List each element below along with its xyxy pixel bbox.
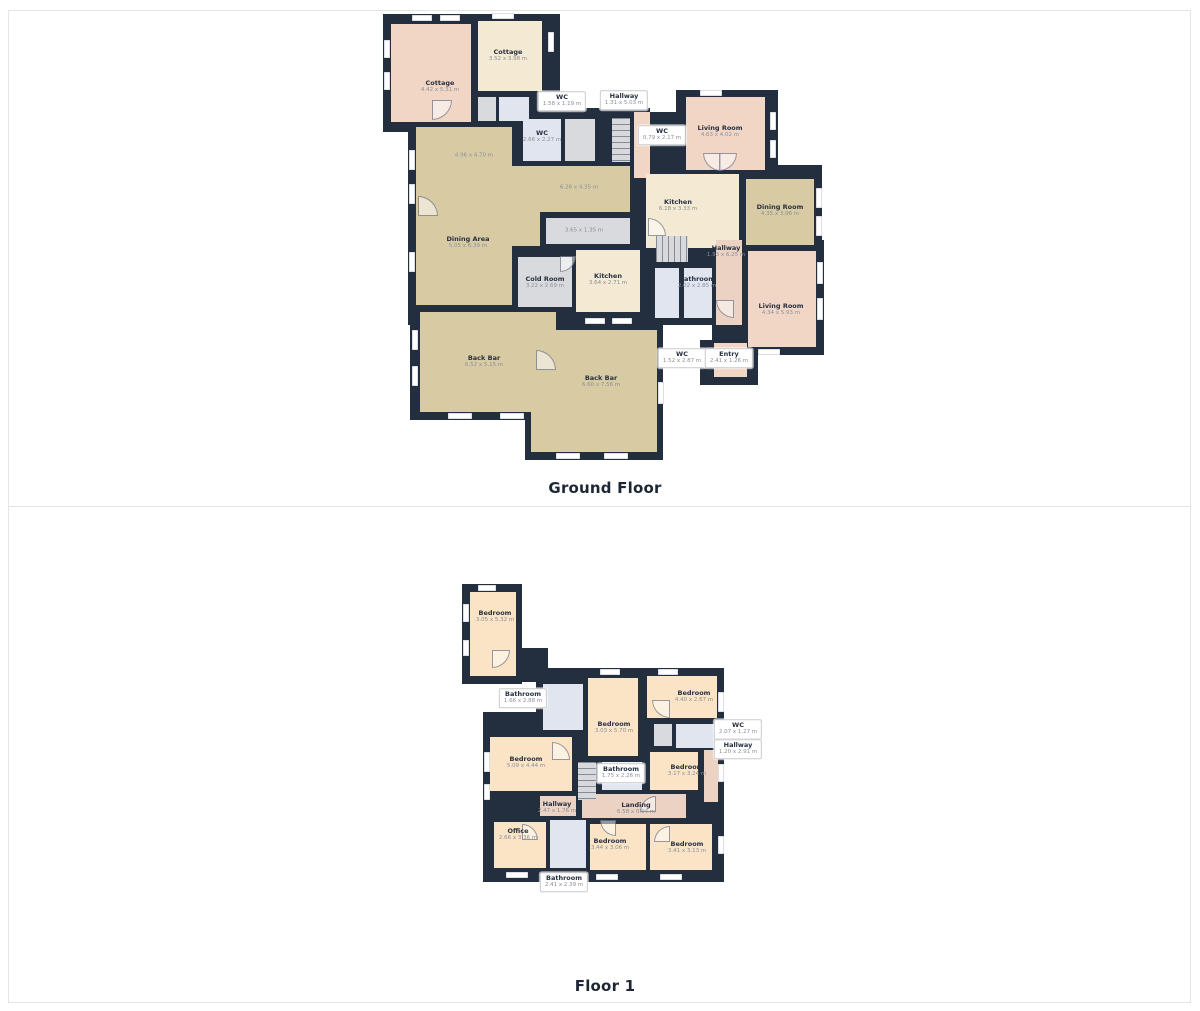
room-name: Back Bar bbox=[582, 374, 620, 382]
room-label-living-top: Living Room4.63 x 4.02 m bbox=[697, 124, 742, 140]
room-dimensions: 2.47 x 1.76 m bbox=[538, 809, 576, 816]
room-name: Office bbox=[499, 827, 537, 835]
room-dimensions: 1.66 x 2.88 m bbox=[504, 699, 542, 706]
room-dimensions: 4.34 x 5.93 m bbox=[758, 311, 803, 318]
room-label-wc-mid: WC2.66 x 2.27 m bbox=[523, 129, 561, 145]
room-dimensions: 0.79 x 2.17 m bbox=[643, 136, 681, 143]
room-name: Bathroom bbox=[545, 874, 583, 882]
room-dimensions: 1.93 x 6.25 m bbox=[707, 253, 745, 260]
room-label-back-bar-right: Back Bar6.60 x 7.56 m bbox=[582, 374, 620, 390]
window bbox=[556, 453, 580, 459]
room-label-back-bar-left: Back Bar6.52 x 5.15 m bbox=[465, 354, 503, 370]
room-cottage-left bbox=[391, 24, 471, 122]
room-dimensions: 3.03 x 5.70 m bbox=[595, 729, 633, 736]
room-name: Hallway bbox=[538, 800, 576, 808]
window bbox=[816, 188, 822, 208]
stairs bbox=[612, 118, 630, 162]
room-label-kitchen-right: Kitchen6.18 x 3.33 m bbox=[659, 198, 697, 214]
room-dimensions: 2.02 x 2.85 m bbox=[678, 284, 716, 291]
window bbox=[484, 784, 490, 800]
room-name: Hallway bbox=[605, 92, 643, 100]
room-name: Back Bar bbox=[465, 354, 503, 362]
room-dimensions: 6.26 x 4.35 m bbox=[560, 184, 598, 191]
window bbox=[816, 216, 822, 236]
room-label-bedroom-mid: Bedroom3.03 x 5.70 m bbox=[595, 720, 633, 736]
window bbox=[506, 872, 528, 878]
room-name: Cottage bbox=[489, 48, 527, 56]
room-dimensions: 6.52 x 5.15 m bbox=[465, 363, 503, 370]
room-label-entry: Entry2.41 x 1.26 m bbox=[705, 348, 753, 368]
window bbox=[384, 72, 390, 90]
room-bathroom-top bbox=[543, 684, 583, 730]
room-dimensions: 2.07 x 1.27 m bbox=[719, 730, 757, 737]
room-dimensions: 6.58 x 0.94 m bbox=[617, 810, 655, 817]
window bbox=[409, 150, 415, 170]
room-name: WC bbox=[523, 129, 561, 137]
room-label-bedroom-bottom-mid: Bedroom3.44 x 3.06 m bbox=[591, 837, 629, 853]
room-dimensions: 4.40 x 2.67 m bbox=[675, 698, 713, 705]
room-area bbox=[565, 119, 595, 161]
room-name: Bathroom bbox=[602, 765, 640, 773]
room-label-corridor: 3.65 x 1.35 m bbox=[565, 227, 603, 234]
room-name: Bedroom bbox=[675, 689, 713, 697]
room-dimensions: 5.05 x 6.39 m bbox=[446, 244, 489, 251]
room-name: WC bbox=[543, 93, 581, 101]
room-label-dining-ext: 6.26 x 4.35 m bbox=[560, 184, 598, 191]
room-dimensions: 4.63 x 4.02 m bbox=[697, 133, 742, 140]
room-label-hallway: Hallway2.47 x 1.76 m bbox=[538, 800, 576, 816]
room-label-kitchen-mid: Kitchen3.64 x 2.71 m bbox=[589, 272, 627, 288]
window bbox=[596, 874, 618, 880]
window bbox=[758, 349, 780, 355]
ground-floor-title: Ground Floor bbox=[548, 479, 661, 497]
room-name: Bathroom bbox=[678, 275, 716, 283]
window bbox=[658, 669, 678, 675]
window bbox=[384, 40, 390, 58]
room-dimensions: 4.42 x 5.31 m bbox=[421, 88, 459, 95]
window bbox=[448, 413, 472, 419]
room-label-dining-room: Dining Room4.35 x 3.96 m bbox=[757, 203, 804, 219]
room-dimensions: 1.75 x 2.26 m bbox=[602, 774, 640, 781]
room-label-bedroom-bottom-right: Bedroom3.41 x 3.13 m bbox=[668, 840, 706, 856]
window bbox=[600, 669, 620, 675]
room-name: Kitchen bbox=[659, 198, 697, 206]
room-dimensions: 1.20 x 2.91 m bbox=[719, 750, 757, 757]
room-name: Hallway bbox=[707, 244, 745, 252]
room-name: Bedroom bbox=[591, 837, 629, 845]
room-dimensions: 4.35 x 3.96 m bbox=[757, 212, 804, 219]
window bbox=[548, 32, 554, 52]
window bbox=[718, 692, 724, 712]
room-label-bedroom-tr: Bedroom4.40 x 2.67 m bbox=[675, 689, 713, 705]
window bbox=[463, 640, 469, 656]
window bbox=[612, 318, 632, 324]
room-name: Bedroom bbox=[476, 609, 514, 617]
room-name: Bedroom bbox=[595, 720, 633, 728]
room-dimensions: 2.66 x 3.36 m bbox=[499, 836, 537, 843]
room-bathroom-bottom bbox=[550, 820, 586, 868]
window bbox=[770, 112, 776, 130]
room-label-bathroom-top: Bathroom1.66 x 2.88 m bbox=[499, 688, 547, 708]
window bbox=[409, 252, 415, 272]
window bbox=[412, 366, 418, 386]
window bbox=[700, 90, 722, 96]
room-dimensions: 3.44 x 3.06 m bbox=[591, 846, 629, 853]
room-label-cottage-right: Cottage3.52 x 3.98 m bbox=[489, 48, 527, 64]
window bbox=[585, 318, 605, 324]
room-area bbox=[478, 97, 496, 121]
room-label-bedroom-tl: Bedroom3.05 x 5.32 m bbox=[476, 609, 514, 625]
room-wc bbox=[676, 724, 716, 748]
room-dimensions: 3.05 x 5.32 m bbox=[476, 618, 514, 625]
room-dimensions: 1.52 x 2.87 m bbox=[663, 359, 701, 366]
room-living-bottom bbox=[748, 251, 816, 347]
room-label-cottage-left: Cottage4.42 x 5.31 m bbox=[421, 79, 459, 95]
room-label-dining-upper: 4.96 x 4.70 m bbox=[455, 152, 493, 159]
window bbox=[817, 262, 823, 284]
room-dimensions: 4.96 x 4.70 m bbox=[455, 152, 493, 159]
room-name: Dining Room bbox=[757, 203, 804, 211]
room-area bbox=[512, 212, 540, 246]
room-dimensions: 1.31 x 5.03 m bbox=[605, 101, 643, 108]
room-name: Bedroom bbox=[507, 755, 545, 763]
room-name: Kitchen bbox=[589, 272, 627, 280]
room-area bbox=[654, 724, 672, 746]
window bbox=[492, 13, 514, 19]
room-label-hallway-right: Hallway1.20 x 2.91 m bbox=[714, 739, 762, 759]
room-bedroom-mid bbox=[588, 678, 638, 756]
room-label-bathroom-mid: Bathroom1.75 x 2.26 m bbox=[597, 763, 645, 783]
room-name: WC bbox=[663, 350, 701, 358]
room-back-bar-right bbox=[531, 330, 657, 452]
window bbox=[718, 764, 724, 782]
stairs bbox=[578, 762, 596, 800]
room-name: Bathroom bbox=[504, 690, 542, 698]
room-label-living-bottom: Living Room4.34 x 5.93 m bbox=[758, 302, 803, 318]
window bbox=[440, 15, 460, 21]
window bbox=[463, 604, 469, 622]
window bbox=[718, 836, 724, 854]
room-dimensions: 6.60 x 7.56 m bbox=[582, 383, 620, 390]
room-wc-top bbox=[499, 97, 529, 121]
window bbox=[500, 413, 524, 419]
room-dimensions: 5.09 x 4.44 m bbox=[507, 764, 545, 771]
room-dimensions: 3.64 x 2.71 m bbox=[589, 281, 627, 288]
window bbox=[817, 298, 823, 320]
room-name: Living Room bbox=[758, 302, 803, 310]
window bbox=[412, 15, 432, 21]
room-dimensions: 2.66 x 2.27 m bbox=[523, 138, 561, 145]
room-name: WC bbox=[643, 127, 681, 135]
room-label-wc-top: WC1.58 x 1.19 m bbox=[538, 91, 586, 111]
room-label-office: Office2.66 x 3.36 m bbox=[499, 827, 537, 843]
plans-layer: Cottage4.42 x 5.31 mCottage3.52 x 3.98 m… bbox=[0, 0, 1200, 1011]
room-dimensions: 3.17 x 3.24 m bbox=[668, 772, 706, 779]
room-label-bedroom-left: Bedroom5.09 x 4.44 m bbox=[507, 755, 545, 771]
room-label-wc-narrow: WC0.79 x 2.17 m bbox=[638, 125, 686, 145]
room-name: Bedroom bbox=[668, 840, 706, 848]
window bbox=[658, 382, 664, 404]
room-name: Living Room bbox=[697, 124, 742, 132]
room-name: Landing bbox=[617, 801, 655, 809]
room-dimensions: 3.65 x 1.35 m bbox=[565, 227, 603, 234]
room-label-hallway-right: Hallway1.93 x 6.25 m bbox=[707, 244, 745, 260]
room-label-bathroom: Bathroom2.02 x 2.85 m bbox=[678, 275, 716, 291]
room-name: Cold Room bbox=[525, 275, 564, 283]
room-label-cold-room: Cold Room3.22 x 2.69 m bbox=[525, 275, 564, 291]
room-name: Entry bbox=[710, 350, 748, 358]
room-name: WC bbox=[719, 721, 757, 729]
room-dimensions: 3.52 x 3.98 m bbox=[489, 57, 527, 64]
room-name: Bedroom bbox=[668, 763, 706, 771]
floorplan-page: Cottage4.42 x 5.31 mCottage3.52 x 3.98 m… bbox=[0, 0, 1200, 1011]
room-name: Hallway bbox=[719, 741, 757, 749]
room-area bbox=[655, 268, 679, 318]
window bbox=[604, 453, 628, 459]
room-label-hallway-top: Hallway1.31 x 5.03 m bbox=[600, 90, 648, 110]
room-label-wc: WC2.07 x 1.27 m bbox=[714, 719, 762, 739]
room-dimensions: 3.22 x 2.69 m bbox=[525, 284, 564, 291]
window bbox=[660, 874, 682, 880]
room-name: Cottage bbox=[421, 79, 459, 87]
stairs bbox=[656, 236, 688, 262]
window bbox=[484, 752, 490, 772]
room-label-dining-area: Dining Area5.05 x 6.39 m bbox=[446, 235, 489, 251]
room-dimensions: 3.41 x 3.13 m bbox=[668, 849, 706, 856]
room-dimensions: 1.58 x 1.19 m bbox=[543, 102, 581, 109]
room-label-landing: Landing6.58 x 0.94 m bbox=[617, 801, 655, 817]
room-label-bathroom-bottom: Bathroom2.41 x 2.39 m bbox=[540, 872, 588, 892]
room-area bbox=[634, 112, 650, 178]
room-dimensions: 2.41 x 2.39 m bbox=[545, 883, 583, 890]
window bbox=[412, 330, 418, 350]
room-dimensions: 6.18 x 3.33 m bbox=[659, 207, 697, 214]
window bbox=[409, 184, 415, 204]
window bbox=[478, 585, 496, 591]
room-label-bedroom-right: Bedroom3.17 x 3.24 m bbox=[668, 763, 706, 779]
floor-1-title: Floor 1 bbox=[575, 977, 635, 995]
room-label-wc-bottom: WC1.52 x 2.87 m bbox=[658, 348, 706, 368]
window bbox=[770, 140, 776, 158]
room-dimensions: 2.41 x 1.26 m bbox=[710, 359, 748, 366]
room-name: Dining Area bbox=[446, 235, 489, 243]
